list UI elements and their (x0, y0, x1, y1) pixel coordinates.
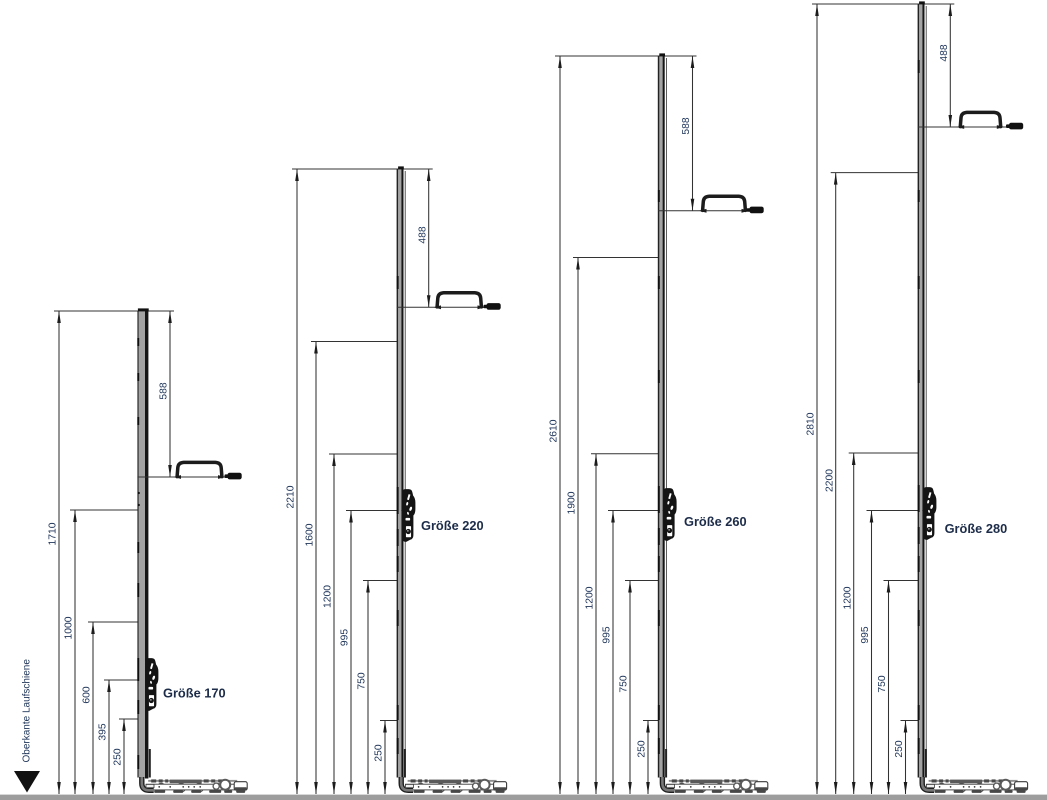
svg-text:1900: 1900 (567, 491, 578, 514)
svg-text:600: 600 (82, 686, 93, 703)
svg-text:2200: 2200 (824, 469, 835, 492)
svg-text:588: 588 (681, 117, 692, 134)
svg-text:995: 995 (860, 626, 871, 643)
svg-text:250: 250 (113, 748, 124, 765)
svg-text:395: 395 (98, 723, 109, 740)
svg-text:588: 588 (159, 382, 170, 399)
svg-text:1200: 1200 (585, 586, 596, 609)
svg-text:488: 488 (939, 44, 950, 61)
svg-text:Größe 170: Größe 170 (163, 686, 226, 701)
svg-text:750: 750 (619, 675, 630, 692)
svg-text:1600: 1600 (305, 523, 316, 546)
svg-text:995: 995 (602, 626, 613, 643)
svg-text:250: 250 (894, 740, 905, 757)
svg-text:750: 750 (357, 672, 368, 689)
svg-text:Größe 280: Größe 280 (945, 521, 1008, 536)
svg-text:1000: 1000 (64, 616, 75, 639)
svg-text:Größe 220: Größe 220 (421, 518, 484, 533)
svg-text:250: 250 (374, 744, 385, 761)
svg-text:1200: 1200 (842, 586, 853, 609)
svg-text:Größe 260: Größe 260 (684, 514, 747, 529)
svg-text:995: 995 (340, 629, 351, 646)
svg-text:2810: 2810 (806, 412, 817, 435)
svg-text:Oberkante Laufschiene: Oberkante Laufschiene (22, 659, 33, 763)
svg-text:488: 488 (417, 226, 428, 243)
svg-text:2210: 2210 (286, 485, 297, 508)
svg-text:750: 750 (877, 675, 888, 692)
svg-text:2610: 2610 (549, 419, 560, 442)
svg-text:1200: 1200 (323, 585, 334, 608)
svg-text:250: 250 (637, 740, 648, 757)
svg-text:1710: 1710 (48, 522, 59, 545)
